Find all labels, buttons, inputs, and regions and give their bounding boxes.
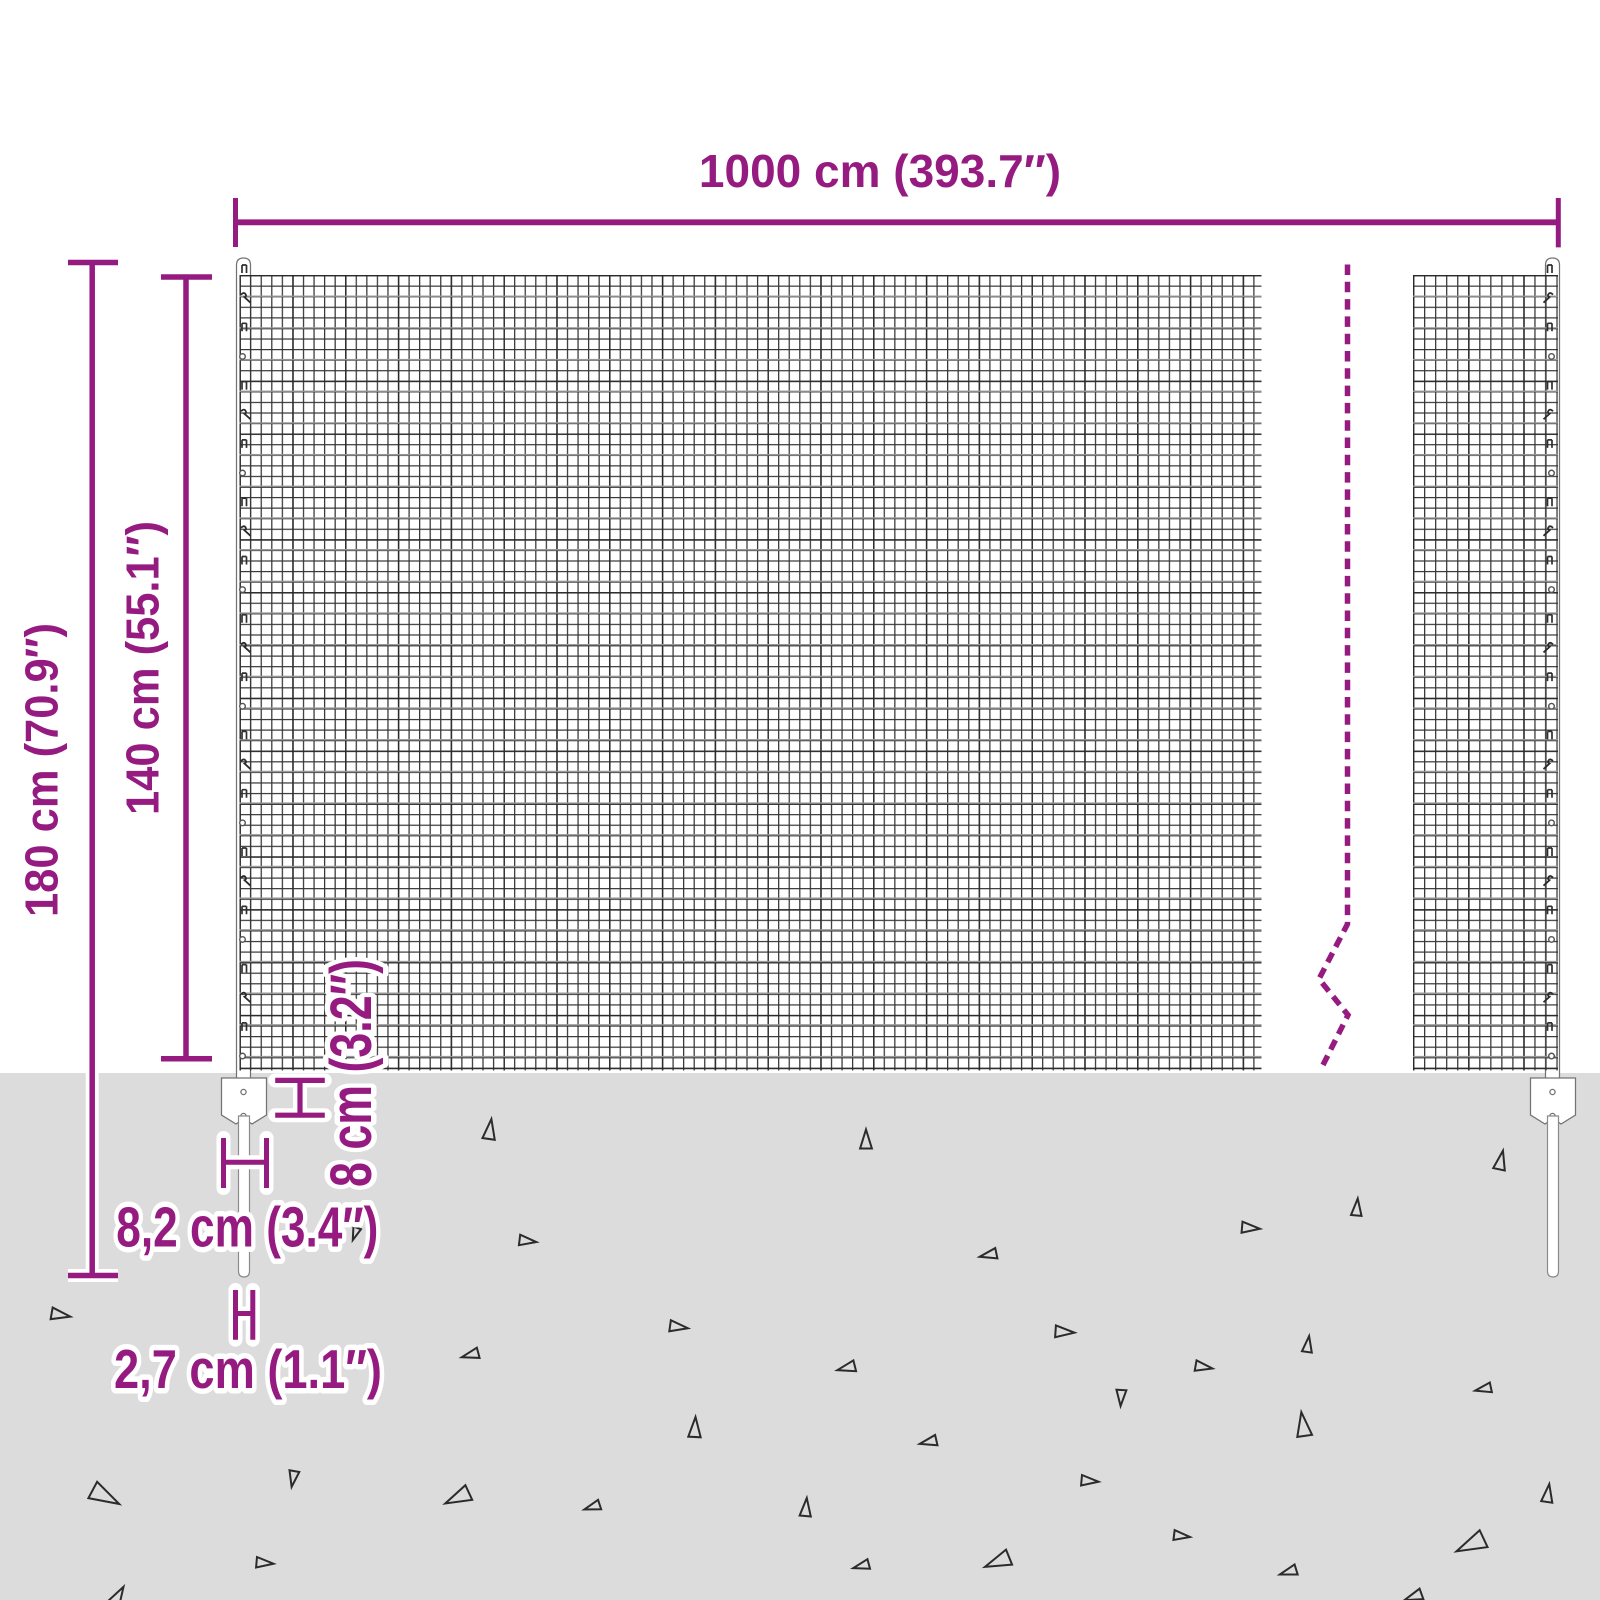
svg-text:140 cm (55.1″): 140 cm (55.1″) — [117, 521, 169, 815]
svg-text:8,2 cm (3.4″): 8,2 cm (3.4″) — [116, 1195, 378, 1259]
svg-text:8 cm (3.2″): 8 cm (3.2″) — [319, 959, 384, 1187]
svg-text:1000 cm (393.7″): 1000 cm (393.7″) — [699, 145, 1061, 197]
svg-text:180 cm (70.9″): 180 cm (70.9″) — [16, 623, 68, 917]
svg-text:2,7 cm (1.1″): 2,7 cm (1.1″) — [114, 1338, 382, 1400]
